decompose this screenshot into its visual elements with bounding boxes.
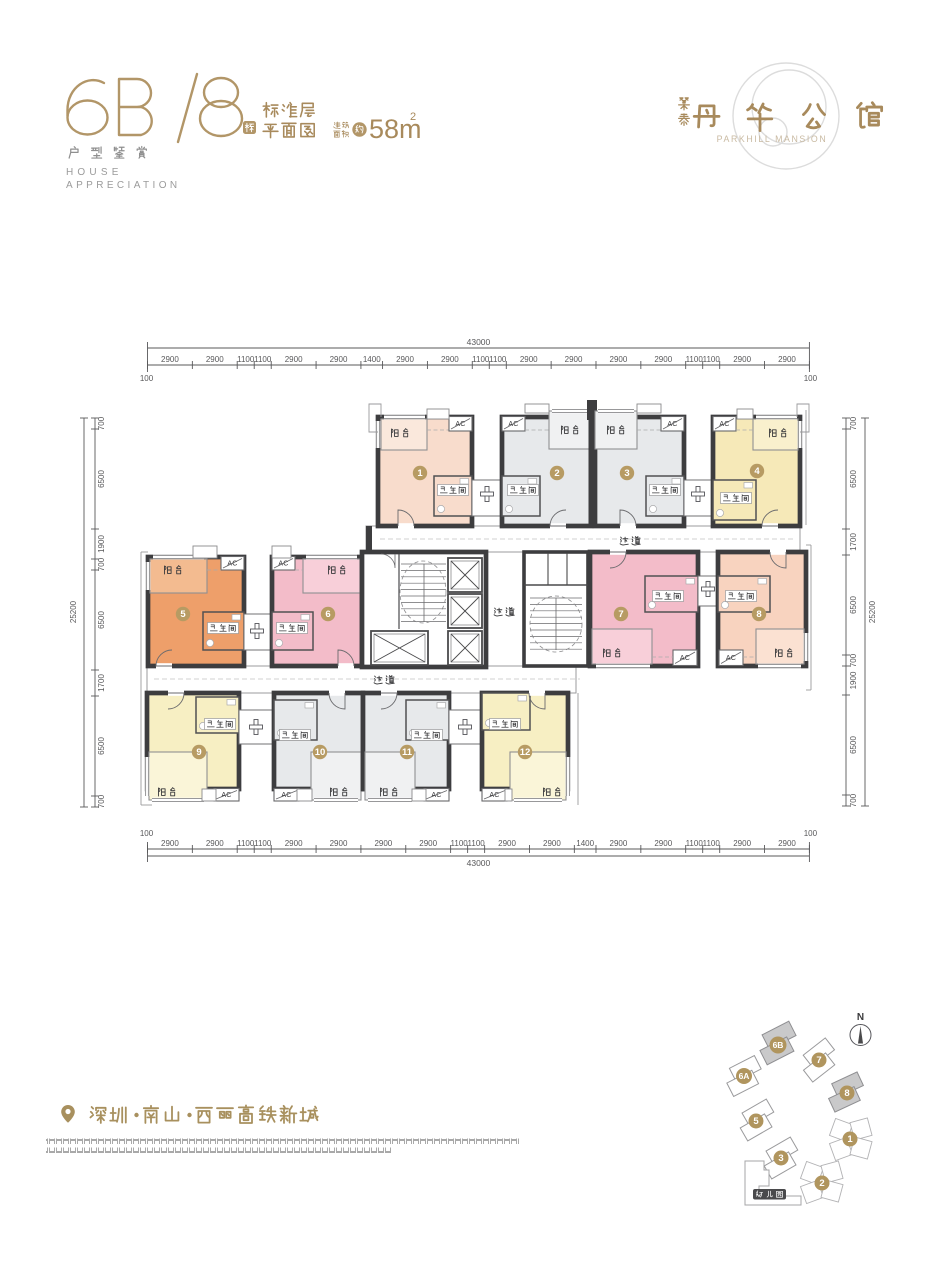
svg-text:1400: 1400 bbox=[363, 355, 381, 364]
svg-text:12: 12 bbox=[520, 747, 531, 758]
svg-text:2900: 2900 bbox=[330, 839, 348, 848]
svg-text:2900: 2900 bbox=[733, 839, 751, 848]
svg-text:6500: 6500 bbox=[97, 737, 106, 755]
svg-text:2900: 2900 bbox=[733, 355, 751, 364]
svg-text:2900: 2900 bbox=[330, 355, 348, 364]
svg-text:N: N bbox=[857, 1012, 864, 1023]
svg-text:7: 7 bbox=[618, 609, 623, 620]
svg-text:1: 1 bbox=[847, 1134, 853, 1145]
svg-text:2900: 2900 bbox=[374, 839, 392, 848]
svg-text:4: 4 bbox=[754, 466, 760, 477]
svg-text:APPRECIATION: APPRECIATION bbox=[66, 180, 181, 191]
svg-text:6500: 6500 bbox=[97, 611, 106, 629]
svg-text:700: 700 bbox=[97, 794, 106, 808]
svg-text:6500: 6500 bbox=[849, 736, 858, 754]
svg-text:1900: 1900 bbox=[97, 535, 106, 553]
svg-text:1700: 1700 bbox=[97, 674, 106, 692]
svg-text:3: 3 bbox=[778, 1153, 783, 1164]
svg-text:8: 8 bbox=[756, 609, 761, 620]
svg-text:5: 5 bbox=[180, 609, 186, 620]
svg-text:3: 3 bbox=[624, 468, 629, 479]
svg-text:6B: 6B bbox=[773, 1040, 784, 1050]
svg-text:2900: 2900 bbox=[778, 839, 796, 848]
svg-text:AC: AC bbox=[726, 655, 736, 662]
svg-text:2900: 2900 bbox=[610, 839, 628, 848]
svg-text:AC: AC bbox=[278, 561, 288, 568]
svg-text:700: 700 bbox=[849, 416, 858, 430]
svg-text:1100: 1100 bbox=[703, 839, 721, 848]
svg-text:AC: AC bbox=[455, 421, 465, 428]
svg-text:1400: 1400 bbox=[576, 839, 594, 848]
svg-text:2: 2 bbox=[410, 111, 416, 123]
svg-text:1100: 1100 bbox=[254, 839, 272, 848]
svg-text:2900: 2900 bbox=[543, 839, 561, 848]
svg-text:1100: 1100 bbox=[468, 839, 486, 848]
svg-text:2900: 2900 bbox=[419, 839, 437, 848]
svg-text:1100: 1100 bbox=[254, 355, 272, 364]
svg-text:2900: 2900 bbox=[610, 355, 628, 364]
svg-text:700: 700 bbox=[849, 793, 858, 807]
svg-text:2: 2 bbox=[819, 1178, 824, 1189]
svg-text:2900: 2900 bbox=[441, 355, 459, 364]
svg-text:AC: AC bbox=[680, 655, 690, 662]
svg-text:1100: 1100 bbox=[489, 355, 507, 364]
svg-text:10: 10 bbox=[315, 747, 326, 758]
svg-text:700: 700 bbox=[97, 416, 106, 430]
svg-text:25200: 25200 bbox=[868, 600, 877, 623]
svg-text:AC: AC bbox=[227, 561, 237, 568]
svg-text:1100: 1100 bbox=[237, 355, 255, 364]
svg-text:1100: 1100 bbox=[686, 355, 704, 364]
svg-text:2900: 2900 bbox=[654, 355, 672, 364]
svg-text:HOUSE: HOUSE bbox=[66, 167, 123, 178]
svg-text:6500: 6500 bbox=[849, 596, 858, 614]
svg-text:AC: AC bbox=[667, 421, 677, 428]
svg-text:1100: 1100 bbox=[686, 839, 704, 848]
svg-text:1100: 1100 bbox=[703, 355, 721, 364]
svg-text:25200: 25200 bbox=[69, 600, 78, 623]
svg-text:100: 100 bbox=[140, 829, 154, 838]
svg-text:AC: AC bbox=[281, 792, 291, 799]
svg-text:AC: AC bbox=[431, 792, 441, 799]
svg-text:2900: 2900 bbox=[206, 839, 224, 848]
svg-text:2900: 2900 bbox=[161, 839, 179, 848]
svg-text:100: 100 bbox=[804, 374, 818, 383]
svg-text:2900: 2900 bbox=[565, 355, 583, 364]
svg-text:2: 2 bbox=[554, 468, 559, 479]
svg-text:2900: 2900 bbox=[161, 355, 179, 364]
svg-text:2900: 2900 bbox=[396, 355, 414, 364]
svg-text:6500: 6500 bbox=[97, 470, 106, 488]
svg-text:2900: 2900 bbox=[778, 355, 796, 364]
svg-text:1: 1 bbox=[417, 468, 423, 479]
svg-text:2900: 2900 bbox=[498, 839, 516, 848]
svg-text:11: 11 bbox=[402, 747, 413, 758]
svg-text:100: 100 bbox=[140, 374, 154, 383]
svg-text:8: 8 bbox=[844, 1088, 849, 1099]
svg-text:700: 700 bbox=[849, 653, 858, 667]
svg-text:1100: 1100 bbox=[237, 839, 255, 848]
svg-text:700: 700 bbox=[97, 557, 106, 571]
svg-text:6A: 6A bbox=[739, 1071, 750, 1081]
svg-text:100: 100 bbox=[804, 829, 818, 838]
svg-text:1100: 1100 bbox=[472, 355, 490, 364]
svg-text:9: 9 bbox=[196, 747, 201, 758]
svg-text:1900: 1900 bbox=[849, 671, 858, 689]
svg-text:AC: AC bbox=[719, 421, 729, 428]
svg-text:AC: AC bbox=[489, 792, 499, 799]
svg-text:PARKHILL MANSION: PARKHILL MANSION bbox=[717, 134, 828, 144]
svg-text:43000: 43000 bbox=[467, 337, 491, 347]
svg-text:6500: 6500 bbox=[849, 470, 858, 488]
svg-text:1100: 1100 bbox=[451, 839, 469, 848]
svg-text:2900: 2900 bbox=[520, 355, 538, 364]
svg-text:2900: 2900 bbox=[285, 355, 303, 364]
svg-text:5: 5 bbox=[753, 1116, 759, 1127]
svg-text:AC: AC bbox=[221, 792, 231, 799]
svg-text:2900: 2900 bbox=[654, 839, 672, 848]
svg-text:2900: 2900 bbox=[285, 839, 303, 848]
svg-text:43000: 43000 bbox=[467, 858, 491, 868]
svg-text:2900: 2900 bbox=[206, 355, 224, 364]
svg-text:AC: AC bbox=[508, 421, 518, 428]
svg-text:6: 6 bbox=[325, 609, 330, 620]
svg-text:1700: 1700 bbox=[849, 533, 858, 551]
svg-text:7: 7 bbox=[816, 1055, 821, 1066]
